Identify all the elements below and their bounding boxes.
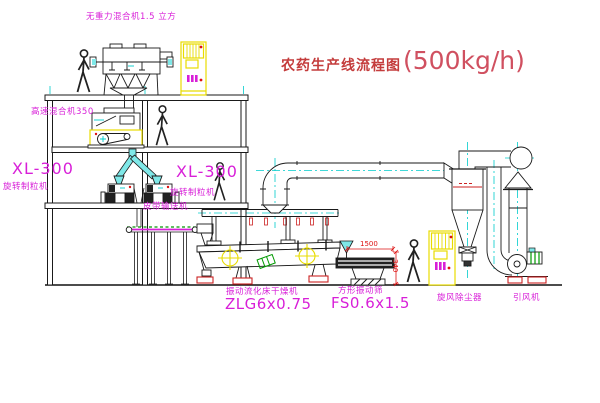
dim-text-1500: 1500 — [360, 241, 378, 248]
control-cabinet-2 — [429, 231, 455, 285]
label-cyclone: 旋风除尘器 — [437, 294, 482, 303]
y-duct — [116, 149, 156, 180]
person-figure — [156, 106, 167, 145]
dryer-spring-clamps — [250, 218, 329, 225]
title-text: 农药生产线流程图 — [281, 55, 401, 75]
fluid-bed-dryer-drawing — [197, 210, 353, 285]
label-fan: 引风机 — [513, 294, 540, 303]
cad-flowsheet-drawing: 农药生产线流程图 (500kg/h) 无重力混合机1.5 立方 高速混合机350… — [0, 0, 600, 403]
label-gravity-mixer: 无重力混合机1.5 立方 — [86, 13, 176, 22]
cabinet-knobs — [187, 75, 198, 82]
high-speed-mixer-drawing — [88, 108, 144, 148]
label-granulator-left-name: 旋转制粒机 — [3, 183, 48, 192]
person-figure — [408, 240, 420, 282]
title-capacity: (500kg/h) — [403, 46, 525, 75]
exhaust-duct — [260, 161, 455, 213]
fan-drawing — [505, 248, 548, 283]
cabinet-knobs — [435, 262, 446, 270]
drawing-title: 农药生产线流程图 (500kg/h) — [281, 46, 525, 75]
label-screen-model: FS0.6x1.5 — [331, 296, 410, 311]
exhaust-stack — [503, 172, 533, 253]
label-granulator-right-name: 旋转制粒机 — [170, 189, 215, 198]
label-granulator-left-model: XL-300 — [12, 161, 74, 177]
label-granulator-right-model: XL-300 — [176, 164, 238, 180]
vibrating-screen-drawing — [336, 246, 399, 286]
label-belt-conveyor: 皮带输送机 — [143, 203, 188, 212]
dim-text-340: 340 — [391, 259, 398, 272]
label-dryer-model: ZLG6x0.75 — [225, 297, 312, 312]
control-cabinet-1 — [181, 42, 206, 95]
label-high-speed-mixer: 高速混合机350 — [31, 108, 94, 117]
granulator-left-drawing — [101, 176, 134, 203]
person-figure — [78, 50, 90, 92]
